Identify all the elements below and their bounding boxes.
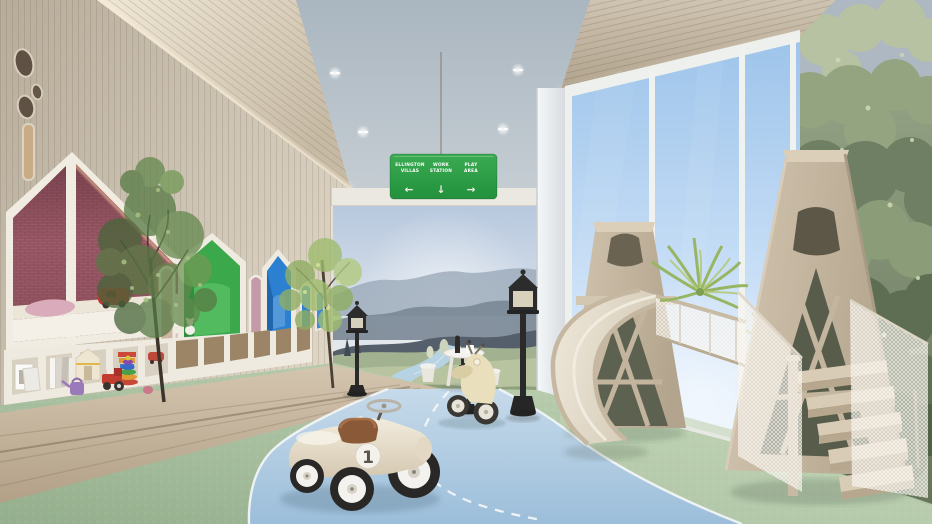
arrow-down-icon: ↓ (437, 184, 446, 196)
table-figurine (455, 340, 460, 353)
sign-label: PLAY (465, 162, 479, 168)
slot-window (23, 124, 34, 180)
landscape-mural (332, 206, 537, 392)
sign-label: VILLAS (401, 168, 419, 174)
race-car-number: 1 (362, 448, 374, 468)
sign-label: AREA (464, 168, 478, 174)
scene-canvas: ELLINGTON VILLAS WORK STATION PLAY AREA … (0, 0, 932, 524)
arrow-left-icon: ← (405, 184, 414, 196)
lamp-glass (351, 318, 363, 328)
arrow-right-icon: → (467, 184, 476, 196)
car-wheel-front (290, 459, 324, 493)
sign-label: STATION (430, 168, 452, 174)
tower-window-cutout (607, 234, 643, 267)
arched-niche (250, 276, 262, 336)
toy-ball (143, 386, 153, 394)
sign-label: ELLINGTON (395, 162, 425, 168)
tower-window-cutout (793, 207, 840, 256)
playroom-render: ELLINGTON VILLAS WORK STATION PLAY AREA … (0, 0, 932, 524)
lamp-glass (513, 291, 533, 307)
sign-label: WORK (433, 162, 449, 168)
direction-sign: ELLINGTON VILLAS WORK STATION PLAY AREA … (390, 154, 497, 199)
car-wheel-rear (330, 467, 374, 511)
